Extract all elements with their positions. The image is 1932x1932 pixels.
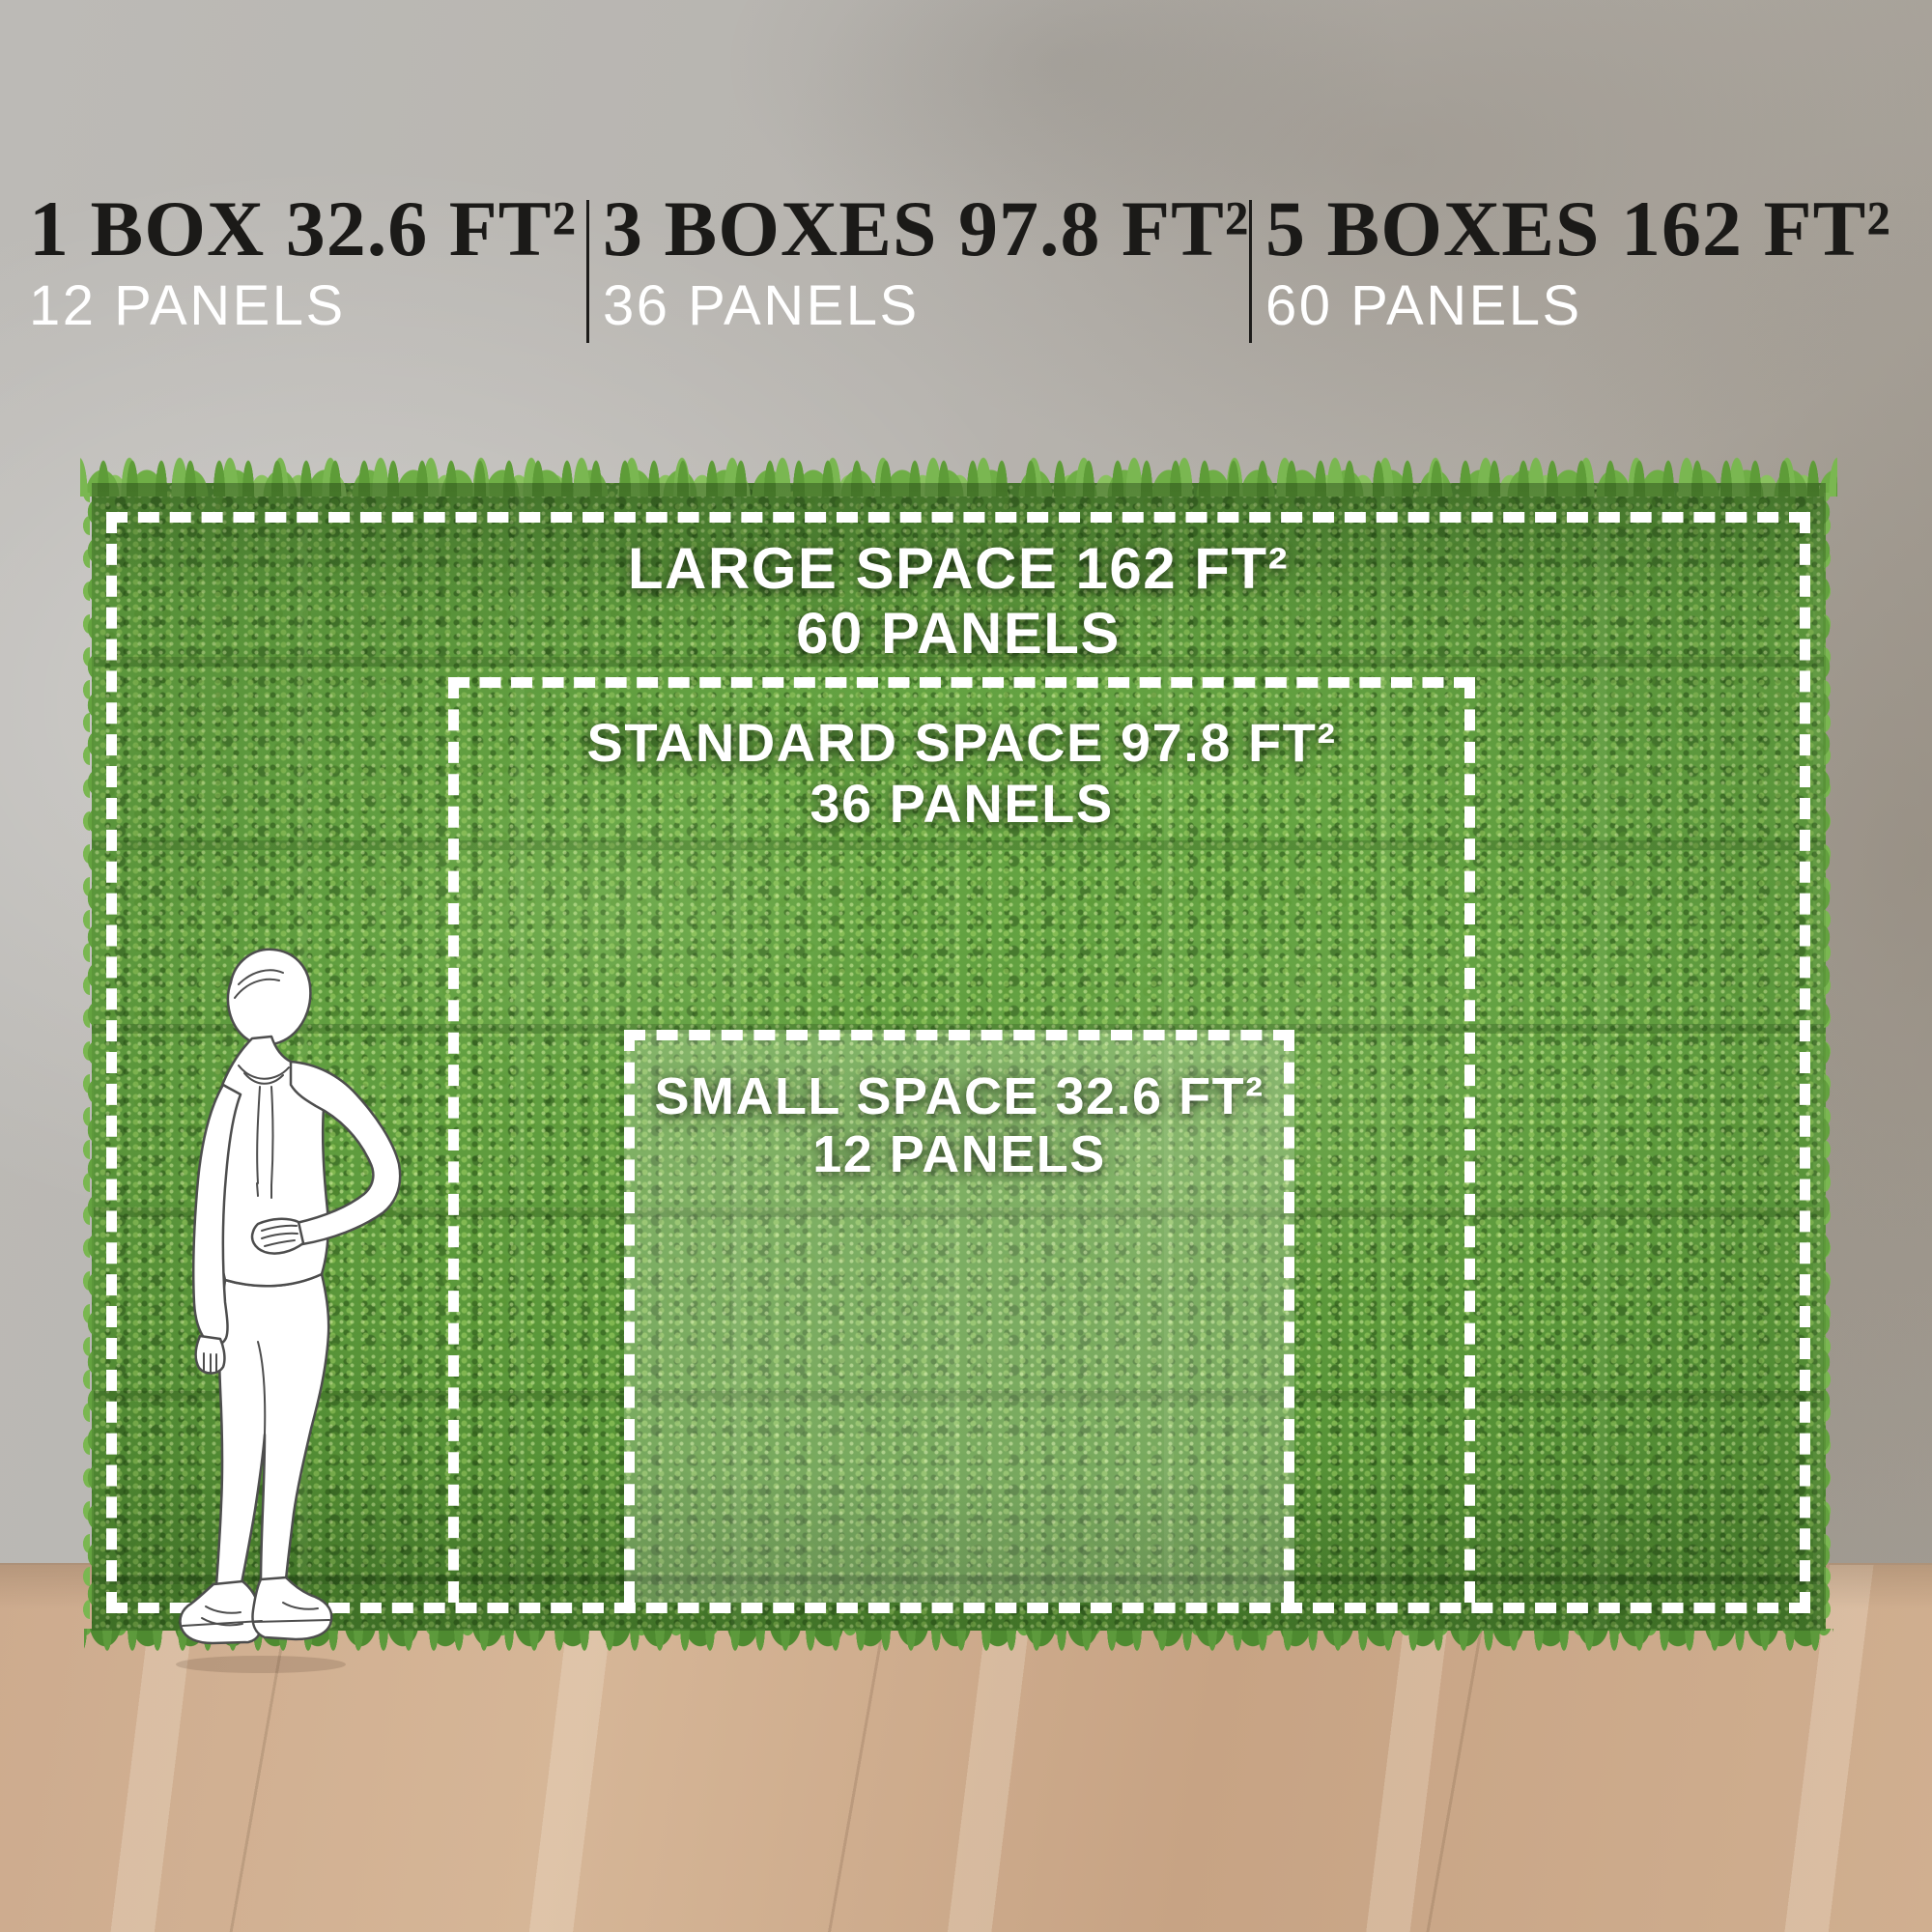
person-illustration	[169, 942, 411, 1676]
option-1-box: 1 BOX 32.6 FT² 12 PANELS	[29, 189, 577, 334]
zone-small-label: SMALL SPACE 32.6 FT² 12 PANELS	[624, 1067, 1294, 1184]
zone-standard-title: STANDARD SPACE 97.8 FT²	[448, 713, 1475, 774]
option-5-panels: 60 PANELS	[1265, 278, 1891, 334]
size-options-header: 1 BOX 32.6 FT² 12 PANELS 3 BOXES 97.8 FT…	[0, 0, 1932, 386]
zone-large-label: LARGE SPACE 162 FT² 60 PANELS	[106, 536, 1810, 666]
header-divider-2	[1249, 200, 1252, 343]
option-5-boxes: 5 BOXES 162 FT² 60 PANELS	[1265, 189, 1891, 334]
zone-small-panels: 12 PANELS	[624, 1125, 1294, 1183]
option-1-title: 1 BOX 32.6 FT²	[29, 189, 577, 269]
zone-small-space: SMALL SPACE 32.6 FT² 12 PANELS	[624, 1030, 1294, 1603]
zone-small-title: SMALL SPACE 32.6 FT²	[624, 1067, 1294, 1125]
option-1-panels: 12 PANELS	[29, 278, 577, 334]
hedge-right-fringe	[1824, 493, 1841, 1621]
greenery-panel-size-infographic: LARGE SPACE 162 FT² 60 PANELS STANDARD S…	[0, 0, 1932, 1932]
zone-standard-panels: 36 PANELS	[448, 774, 1475, 835]
option-5-title: 5 BOXES 162 FT²	[1265, 189, 1891, 269]
header-divider-1	[586, 200, 589, 343]
zone-large-title: LARGE SPACE 162 FT²	[106, 536, 1810, 601]
option-3-title: 3 BOXES 97.8 FT²	[603, 189, 1249, 269]
option-3-boxes: 3 BOXES 97.8 FT² 36 PANELS	[603, 189, 1249, 334]
zone-standard-label: STANDARD SPACE 97.8 FT² 36 PANELS	[448, 713, 1475, 834]
option-3-panels: 36 PANELS	[603, 278, 1249, 334]
zone-large-panels: 60 PANELS	[106, 601, 1810, 666]
